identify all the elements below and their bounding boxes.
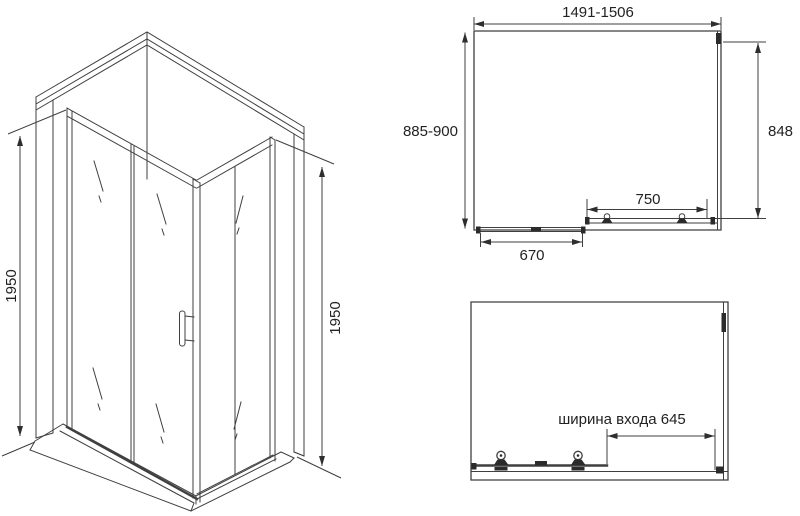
rail-bracket [535, 461, 547, 466]
iso-view: 1950 1950 [2, 32, 344, 511]
top-frame [36, 32, 304, 140]
dim-label-height-left: 1950 [3, 269, 20, 302]
extension-line [481, 233, 583, 247]
dim-label-overall-depth: 885-900 [403, 123, 458, 140]
dim-label-overall-width: 1491-1506 [562, 4, 634, 21]
door-handle [180, 311, 195, 346]
dim-label-door-span: 750 [635, 191, 660, 208]
front-view: ширина входа 645 [471, 302, 728, 480]
front-outline [471, 302, 728, 480]
base-tray [30, 424, 304, 511]
roller [571, 451, 586, 470]
track-bracket [531, 227, 541, 231]
left-wall-panel [36, 100, 53, 438]
technical-drawing: 1950 1950 1491-1506 885-900 848 750 [0, 0, 800, 516]
glass-sparkles [93, 161, 243, 443]
drawing-canvas: 1950 1950 1491-1506 885-900 848 750 [0, 0, 800, 516]
extension-line [607, 429, 715, 470]
wall-profile-cap [722, 313, 727, 332]
dim-label-side-panel: 848 [768, 123, 793, 140]
plan-outline [474, 31, 721, 230]
front-right-panel [197, 137, 276, 499]
roller [494, 451, 509, 470]
dim-label-height-right: 1950 [327, 301, 344, 334]
wall-profile-cap [716, 33, 722, 44]
dim-label-track-span: 670 [519, 247, 544, 264]
plan-view: 1491-1506 885-900 848 750 [403, 4, 793, 264]
rail-end-cap [472, 463, 477, 470]
right-wall-panel [294, 134, 304, 456]
corner-bracket [716, 467, 724, 474]
front-left-panel [67, 108, 200, 502]
door-track [585, 214, 717, 225]
dim-label-entry-width: ширина входа 645 [558, 411, 686, 428]
